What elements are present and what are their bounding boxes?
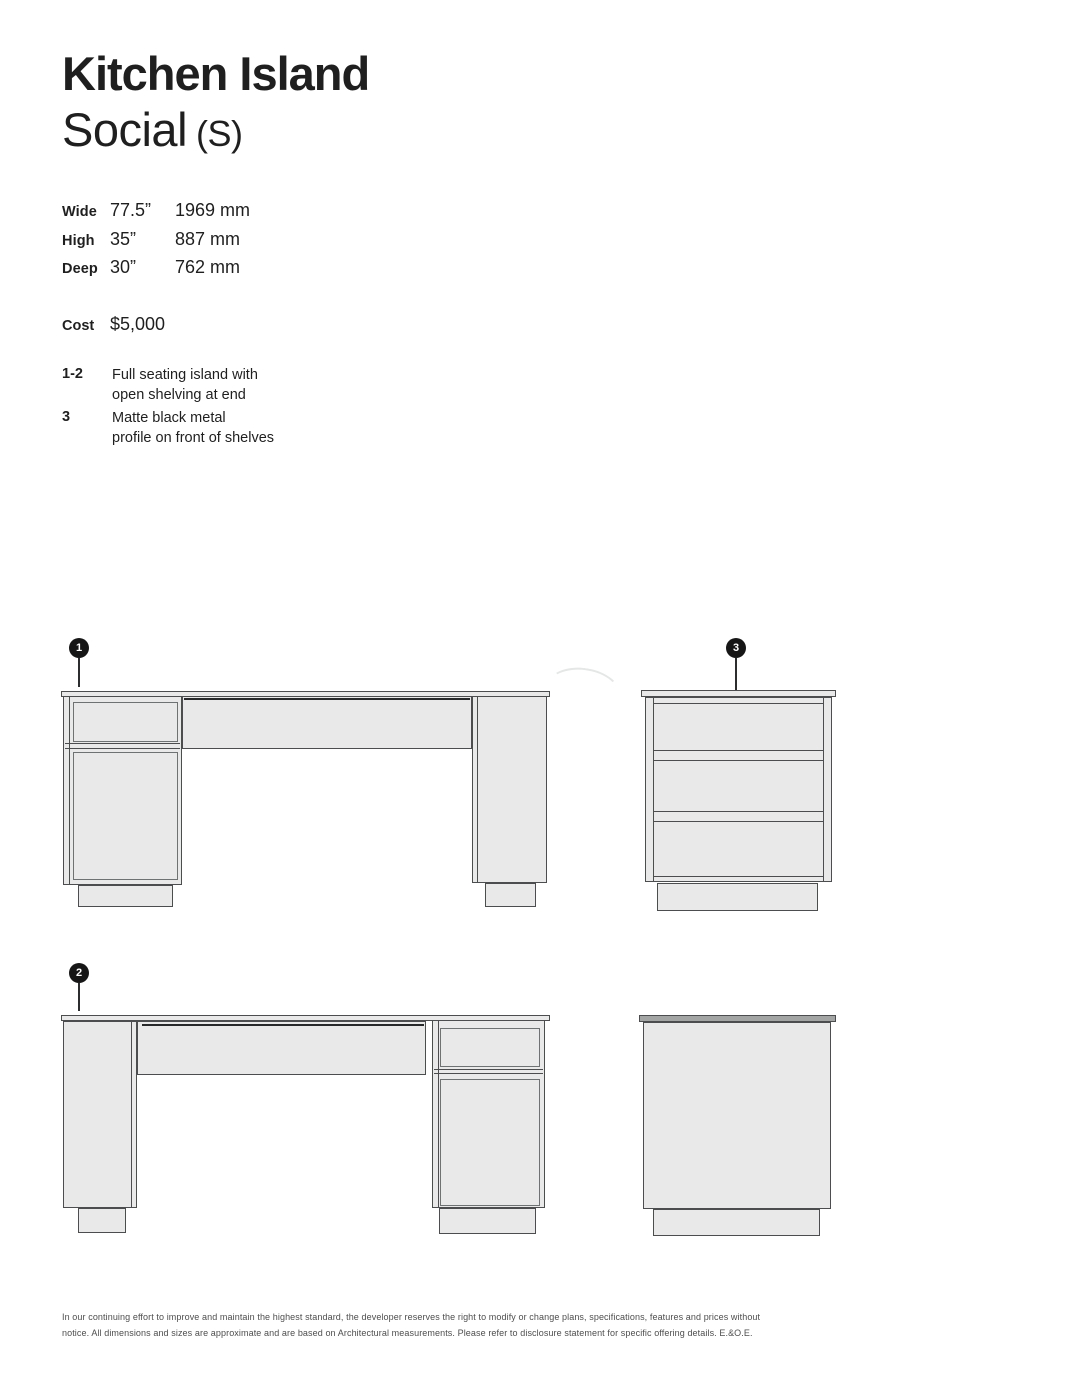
drawing-plain-end-view (639, 1015, 836, 1236)
page-title: Kitchen Island (62, 46, 369, 102)
cabinet-side-panel-line (438, 1021, 439, 1207)
bottom-rail-line (653, 876, 824, 877)
callout-3-badge: 3 (726, 638, 746, 658)
cabinet-divider-line (65, 748, 180, 749)
header: Kitchen Island Social(S) (62, 46, 369, 162)
dimension-row-high: High 35” 887 mm (62, 229, 250, 258)
spec-sheet-page: Kitchen Island Social(S) Wide 77.5” 1969… (0, 0, 1080, 1398)
drawer-front (73, 702, 178, 742)
cost-row: Cost $5,000 (62, 314, 165, 335)
plinth (485, 883, 536, 907)
drawing-front-elevation-2 (61, 1015, 550, 1236)
cost-value: $5,000 (110, 314, 165, 335)
note-item: 1-2 Full seating island with open shelvi… (62, 366, 297, 405)
door-panel (73, 752, 178, 880)
cabinet-divider-line (434, 1069, 543, 1070)
shelf-edge-line (653, 760, 824, 761)
plinth (78, 1208, 126, 1233)
apron (182, 696, 472, 749)
watermark-swoosh (542, 663, 624, 721)
end-leg-panel (63, 1021, 137, 1208)
shelving-box (645, 697, 832, 882)
leg-edge-line (131, 1022, 132, 1207)
note-item: 3 Matte black metal profile on front of … (62, 409, 297, 448)
shelf-edge-line (653, 811, 824, 812)
end-leg-panel (472, 696, 547, 883)
note-text: Full seating island with open shelving a… (112, 366, 297, 405)
callout-1-leader (78, 658, 80, 687)
metal-profile-strip (142, 1024, 424, 1027)
cabinet-side-panel-line (69, 697, 70, 884)
subtitle-text: Social (62, 103, 187, 156)
page-subtitle: Social(S) (62, 102, 369, 162)
metal-profile-strip (184, 698, 470, 701)
side-panel-line (653, 698, 654, 881)
side-panel-line (823, 698, 824, 881)
end-panel (643, 1022, 831, 1209)
plinth (439, 1208, 536, 1234)
note-key: 1-2 (62, 366, 112, 405)
cost-label: Cost (62, 318, 110, 334)
door-panel (440, 1079, 540, 1206)
dimension-imperial: 77.5” (110, 200, 175, 221)
disclaimer-text: In our continuing effort to improve and … (62, 1310, 782, 1341)
dimension-metric: 887 mm (175, 229, 240, 250)
cabinet-divider-line (434, 1073, 543, 1074)
apron (137, 1021, 426, 1075)
note-text: Matte black metal profile on front of sh… (112, 409, 297, 448)
plinth (657, 883, 818, 911)
shelf-edge-line (653, 750, 824, 751)
dimensions-table: Wide 77.5” 1969 mm High 35” 887 mm Deep … (62, 200, 250, 286)
top-rail-line (653, 703, 824, 704)
dimension-imperial: 35” (110, 229, 175, 250)
dimension-row-deep: Deep 30” 762 mm (62, 257, 250, 286)
shelf-edge-line (653, 821, 824, 822)
dimension-label: Deep (62, 261, 110, 277)
drawing-front-elevation-1 (61, 691, 550, 908)
callout-2-badge: 2 (69, 963, 89, 983)
dimension-metric: 762 mm (175, 257, 240, 278)
note-key: 3 (62, 409, 112, 448)
callout-2-leader (78, 983, 80, 1011)
dimension-row-wide: Wide 77.5” 1969 mm (62, 200, 250, 229)
plinth (78, 885, 173, 907)
dimension-label: Wide (62, 204, 110, 220)
dimension-imperial: 30” (110, 257, 175, 278)
callout-1-badge: 1 (69, 638, 89, 658)
drawing-shelving-end-view (641, 690, 836, 911)
drawer-front (440, 1028, 540, 1067)
dimension-label: High (62, 233, 110, 249)
dimension-metric: 1969 mm (175, 200, 250, 221)
leg-edge-line (477, 697, 478, 882)
size-code: (S) (196, 113, 243, 154)
countertop (641, 690, 836, 697)
callout-notes: 1-2 Full seating island with open shelvi… (62, 366, 297, 452)
cabinet-divider-line (65, 743, 180, 744)
plinth (653, 1209, 820, 1236)
countertop (639, 1015, 836, 1022)
